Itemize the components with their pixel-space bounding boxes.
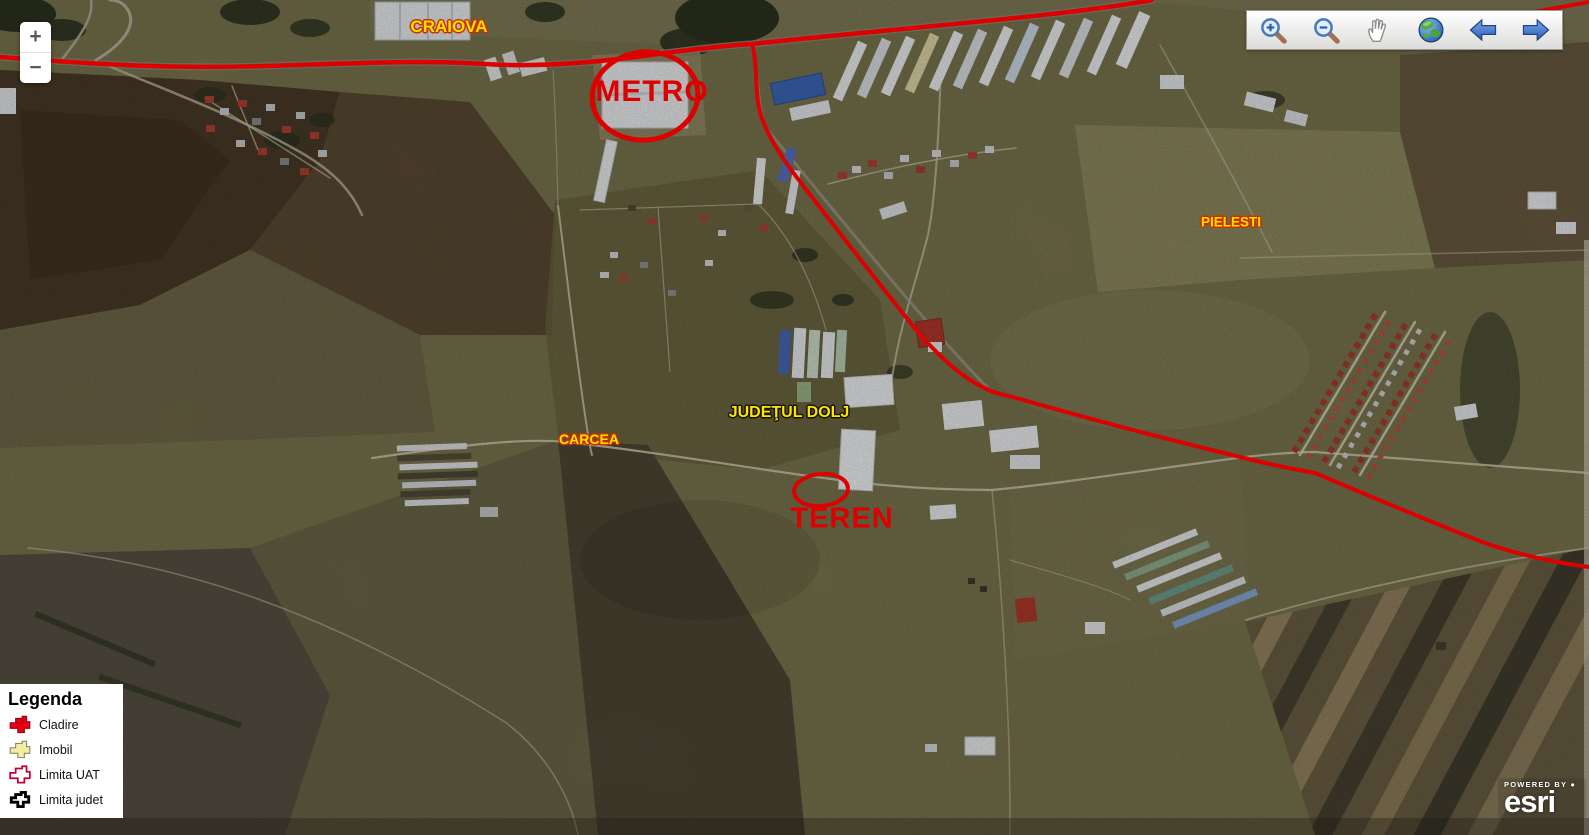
legend-item-label: Cladire [39, 718, 79, 732]
legend-item-limita-uat: Limita UAT [8, 765, 119, 785]
imobil-symbol [8, 740, 32, 760]
legend-item-label: Limita judet [39, 793, 103, 807]
legend-item-limita-judet: Limita judet [8, 790, 119, 810]
legend-item-imobil: Imobil [8, 740, 119, 760]
legend-item-label: Imobil [39, 743, 72, 757]
zoom-in-tool-button[interactable] [1252, 13, 1294, 47]
limita-uat-symbol [8, 765, 32, 785]
forward-arrow-icon [1520, 15, 1552, 45]
zoom-out-magnifier-icon [1311, 15, 1341, 45]
zoom-in-magnifier-icon [1258, 15, 1288, 45]
legend-title: Legenda [8, 689, 119, 710]
esri-dot-icon: ● [1570, 780, 1576, 789]
legend-item-label: Limita UAT [39, 768, 100, 782]
zoom-out-tool-button[interactable] [1305, 13, 1347, 47]
esri-logo-text: esri [1504, 789, 1582, 815]
map-viewport[interactable]: CRAIOVA METRO PIELESTI JUDEŢUL DOLJ CARC… [0, 0, 1589, 835]
pan-tool-button[interactable] [1357, 13, 1399, 47]
esri-attribution: POWERED BY ● esri [1498, 778, 1586, 819]
limita-judet-symbol [8, 790, 32, 810]
cladire-symbol [8, 715, 32, 735]
full-extent-tool-button[interactable] [1410, 13, 1452, 47]
legend-item-cladire: Cladire [8, 715, 119, 735]
film-grain [0, 0, 1589, 835]
globe-icon [1416, 15, 1446, 45]
back-arrow-icon [1467, 15, 1499, 45]
zoom-out-button[interactable]: − [20, 52, 51, 83]
legend-panel: Legenda Cladire Imobil Limita UAT Limita [0, 684, 123, 818]
satellite-imagery[interactable] [0, 0, 1589, 835]
zoom-control: + − [20, 22, 51, 83]
pan-hand-icon [1363, 15, 1393, 45]
zoom-in-button[interactable]: + [20, 22, 51, 52]
map-toolbar [1246, 10, 1563, 50]
forward-tool-button[interactable] [1515, 13, 1557, 47]
back-tool-button[interactable] [1462, 13, 1504, 47]
bottom-shade [0, 818, 1589, 835]
